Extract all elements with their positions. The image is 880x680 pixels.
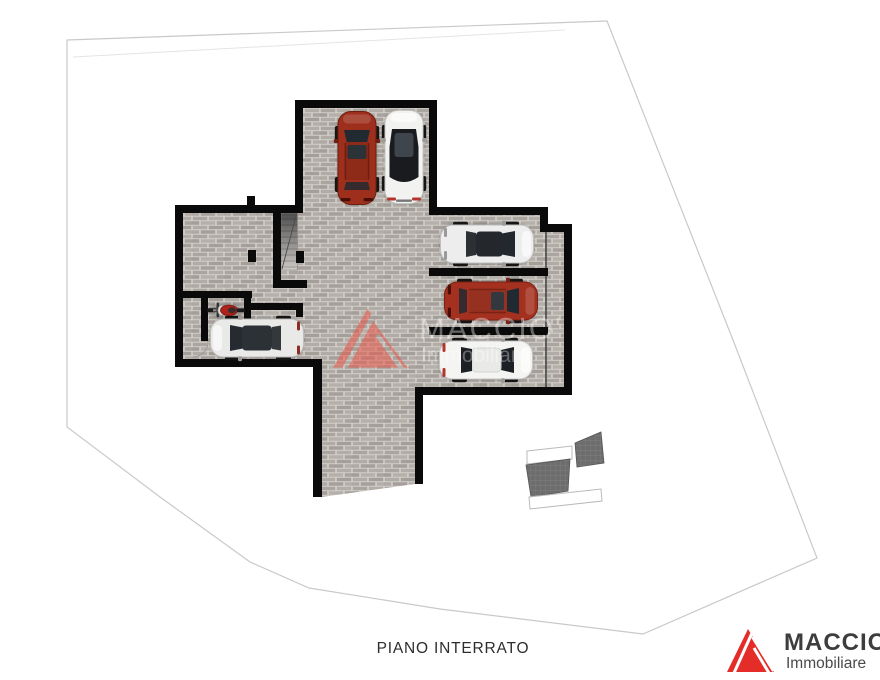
floor-label: PIANO INTERRATO	[377, 640, 530, 657]
floor-plan-canvas: MACCIO' Immobiliare PIANO INTERRATO MACC…	[0, 0, 880, 680]
agency-logo: MACCIO' Immobiliare	[727, 629, 880, 672]
watermark-subtitle: Immobiliare	[421, 344, 530, 367]
watermark-name: MACCIO'	[419, 311, 563, 346]
agency-subtitle: Immobiliare	[786, 655, 866, 672]
car-red-suv	[334, 112, 380, 206]
agency-name: MACCIO'	[784, 629, 880, 656]
watermark: MACCIO' Immobiliare	[333, 309, 563, 368]
floor-plan-page: MACCIO' Immobiliare PIANO INTERRATO MACC…	[0, 0, 880, 680]
car-white-black-roof	[381, 111, 427, 205]
car-silver-city	[211, 315, 305, 361]
staircase	[281, 213, 298, 270]
maccio-mountain-icon	[727, 629, 774, 672]
car-silver	[440, 221, 534, 267]
